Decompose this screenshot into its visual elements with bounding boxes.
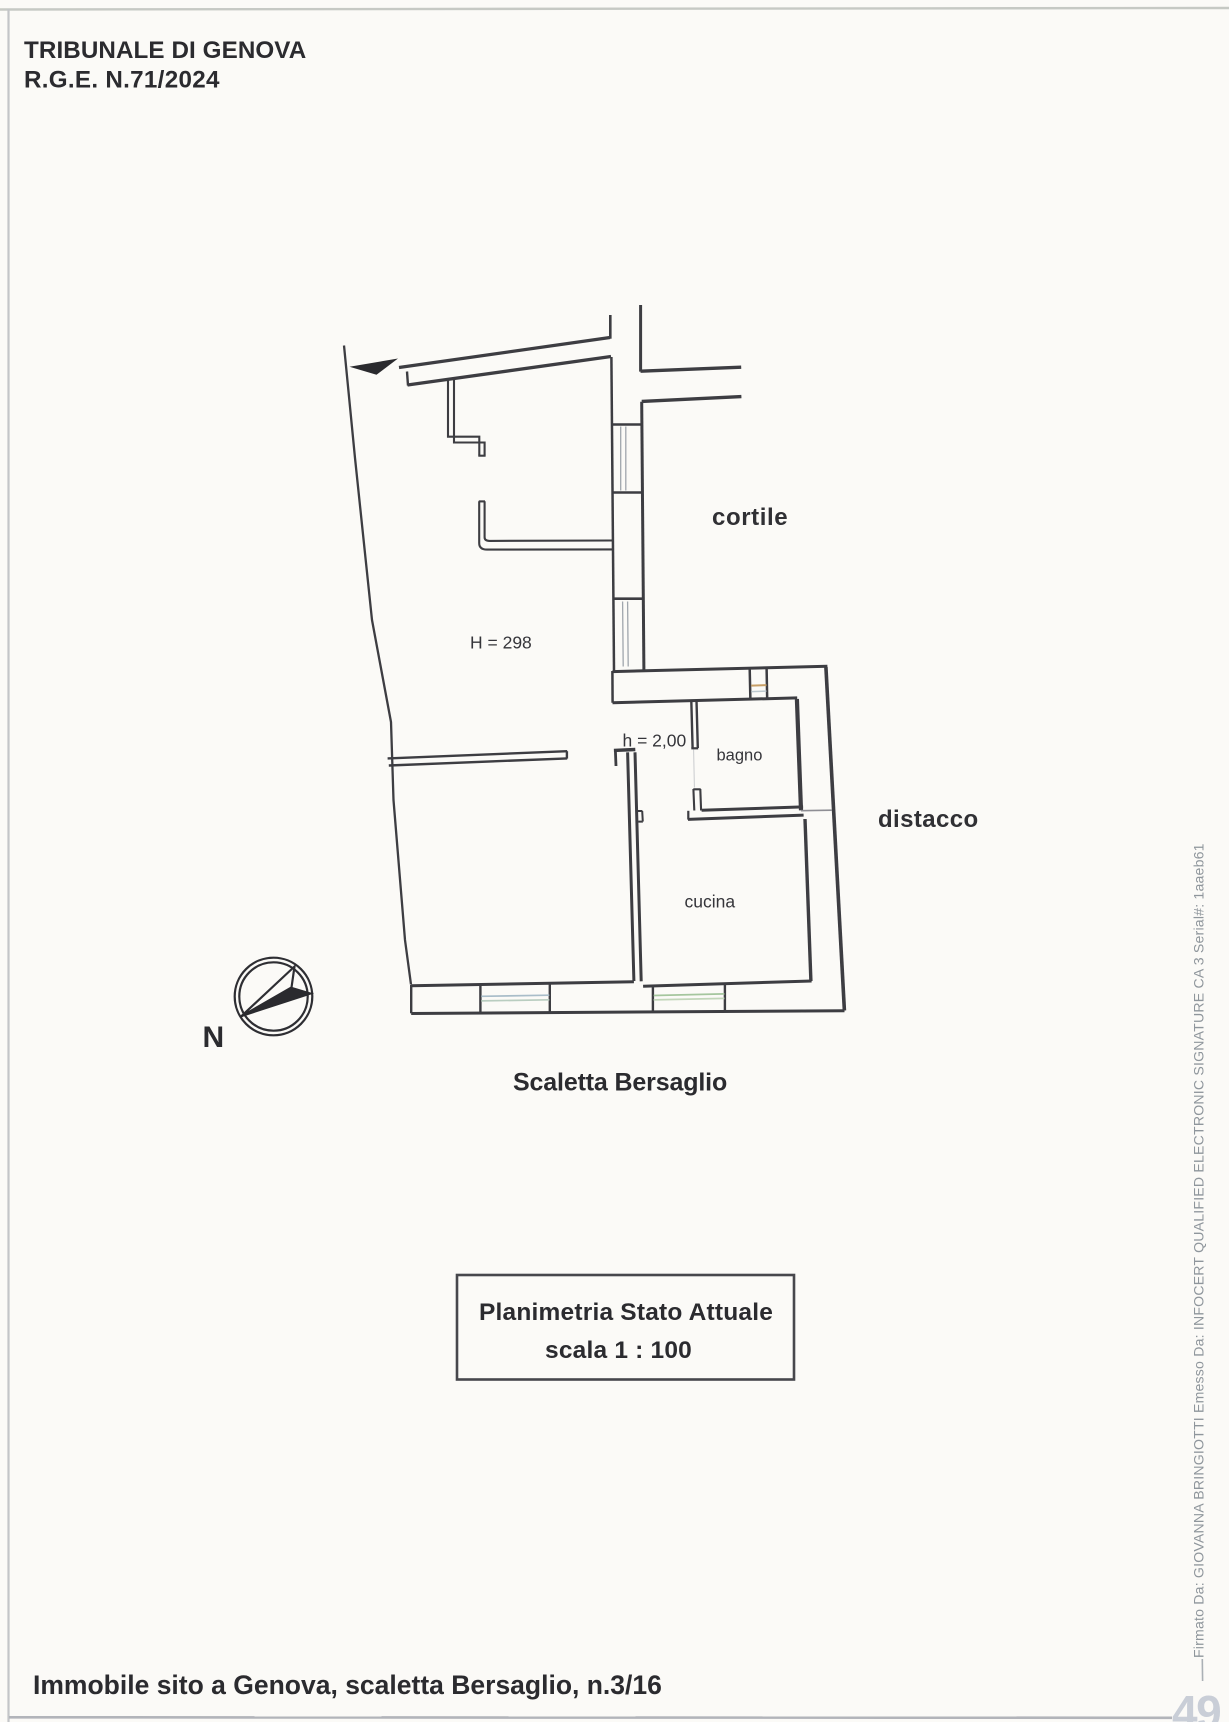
svg-text:cucina: cucina <box>685 892 736 912</box>
svg-text:TRIBUNALE DI GENOVA: TRIBUNALE DI GENOVA <box>24 37 306 64</box>
svg-text:distacco: distacco <box>878 806 979 833</box>
svg-text:bagno: bagno <box>717 747 763 765</box>
svg-text:49: 49 <box>1172 1686 1220 1722</box>
svg-text:Scaletta Bersaglio: Scaletta Bersaglio <box>513 1069 727 1097</box>
svg-text:N: N <box>203 1021 225 1054</box>
svg-text:scala 1 : 100: scala 1 : 100 <box>545 1337 692 1364</box>
svg-text:R.G.E. N.71/2024: R.G.E. N.71/2024 <box>24 67 220 94</box>
svg-text:Immobile sito a Genova, scalet: Immobile sito a Genova, scaletta Bersagl… <box>33 1670 662 1700</box>
svg-text:Firmato Da: GIOVANNA BRINGIOTT: Firmato Da: GIOVANNA BRINGIOTTI Emesso D… <box>1191 843 1207 1658</box>
svg-text:H = 298: H = 298 <box>470 633 532 653</box>
svg-text:cortile: cortile <box>712 504 788 531</box>
svg-text:Planimetria Stato Attuale: Planimetria Stato Attuale <box>479 1299 773 1326</box>
svg-text:h = 2,00: h = 2,00 <box>623 731 687 751</box>
